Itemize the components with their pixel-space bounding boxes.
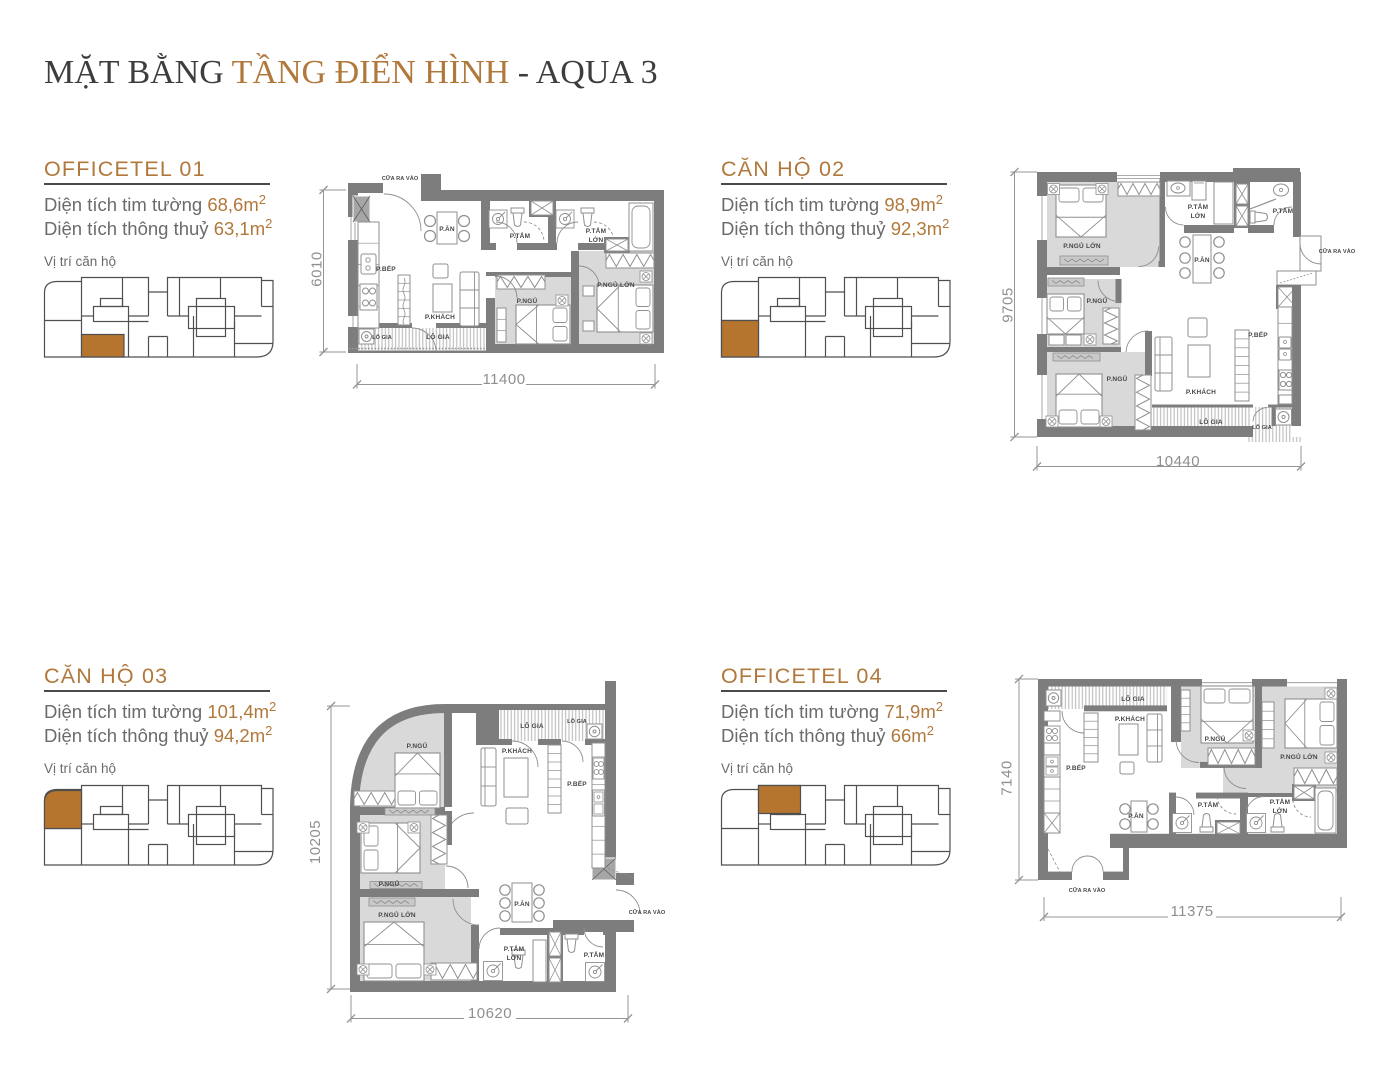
svg-text:10620: 10620 (468, 1005, 512, 1022)
svg-text:LỚN: LỚN (589, 235, 604, 244)
svg-text:LỚN: LỚN (1191, 211, 1206, 220)
svg-text:10205: 10205 (307, 820, 324, 864)
svg-text:P.NGỦ: P.NGỦ (1087, 296, 1108, 305)
svg-text:LỚN: LỚN (1273, 806, 1288, 815)
svg-text:P.TẮM: P.TẮM (1188, 202, 1208, 211)
svg-text:P.NGỦ: P.NGỦ (379, 879, 400, 888)
svg-text:P.TẮM: P.TẮM (1273, 206, 1293, 215)
svg-text:6010: 6010 (309, 251, 326, 286)
svg-text:LÔ GIA: LÔ GIA (1121, 694, 1145, 703)
svg-text:P.KHÁCH: P.KHÁCH (1115, 714, 1145, 723)
svg-text:P.NGỦ: P.NGỦ (1107, 374, 1128, 383)
svg-text:P.BẾP: P.BẾP (1066, 762, 1086, 772)
svg-text:LỚN: LỚN (507, 953, 522, 962)
svg-text:LÔ GIA: LÔ GIA (426, 332, 450, 341)
svg-text:LÔ GIA: LÔ GIA (1252, 423, 1272, 431)
svg-text:LÔ GIA: LÔ GIA (520, 721, 544, 730)
svg-text:P.NGỦ LỚN: P.NGỦ LỚN (1280, 752, 1318, 761)
svg-text:P.ĂN: P.ĂN (1128, 811, 1144, 820)
svg-text:P.ĂN: P.ĂN (514, 899, 530, 908)
svg-text:P.ĂN: P.ĂN (439, 224, 455, 233)
svg-text:LÔ GIA: LÔ GIA (372, 333, 392, 341)
svg-text:9705: 9705 (1000, 287, 1017, 322)
svg-text:11400: 11400 (482, 371, 525, 388)
svg-text:P.TẮM: P.TẮM (1270, 797, 1290, 806)
svg-text:P.TẮM: P.TẮM (586, 226, 606, 235)
svg-text:11375: 11375 (1170, 903, 1213, 920)
svg-text:P.NGỦ LỚN: P.NGỦ LỚN (378, 910, 416, 919)
svg-text:P.ĂN: P.ĂN (1194, 255, 1210, 264)
svg-text:P.NGỦ: P.NGỦ (407, 741, 428, 750)
svg-text:P.NGỦ LỚN: P.NGỦ LỚN (597, 280, 635, 289)
svg-text:CỮA RA VÀO: CỮA RA VÀO (1069, 887, 1106, 894)
svg-text:P.KHÁCH: P.KHÁCH (425, 312, 455, 321)
svg-text:P.NGỦ LỚN: P.NGỦ LỚN (1063, 241, 1101, 250)
svg-text:P.TẮM: P.TẮM (1198, 800, 1218, 809)
svg-text:P.BẾP: P.BẾP (567, 778, 587, 788)
svg-text:P.NGỦ: P.NGỦ (1205, 734, 1226, 743)
svg-text:P.KHÁCH: P.KHÁCH (502, 746, 532, 755)
svg-text:LÔ GIA: LÔ GIA (1199, 417, 1223, 426)
svg-text:P.TẮM: P.TẮM (504, 944, 524, 953)
svg-text:10440: 10440 (1156, 453, 1200, 470)
svg-text:P.TẮM: P.TẮM (510, 231, 530, 240)
svg-text:P.KHÁCH: P.KHÁCH (1186, 387, 1216, 396)
svg-text:P.NGỦ: P.NGỦ (517, 296, 538, 305)
svg-text:CỮA RA VÀO: CỮA RA VÀO (1319, 248, 1356, 255)
svg-text:P.TẮM: P.TẮM (584, 950, 604, 959)
svg-text:7140: 7140 (999, 760, 1016, 795)
svg-text:P.BẾP: P.BẾP (1248, 329, 1268, 339)
svg-text:CỮA RA VÀO: CỮA RA VÀO (629, 909, 666, 916)
svg-text:LÔ GIA: LÔ GIA (567, 717, 587, 725)
svg-text:CỮA RA VÀO: CỮA RA VÀO (382, 175, 419, 182)
